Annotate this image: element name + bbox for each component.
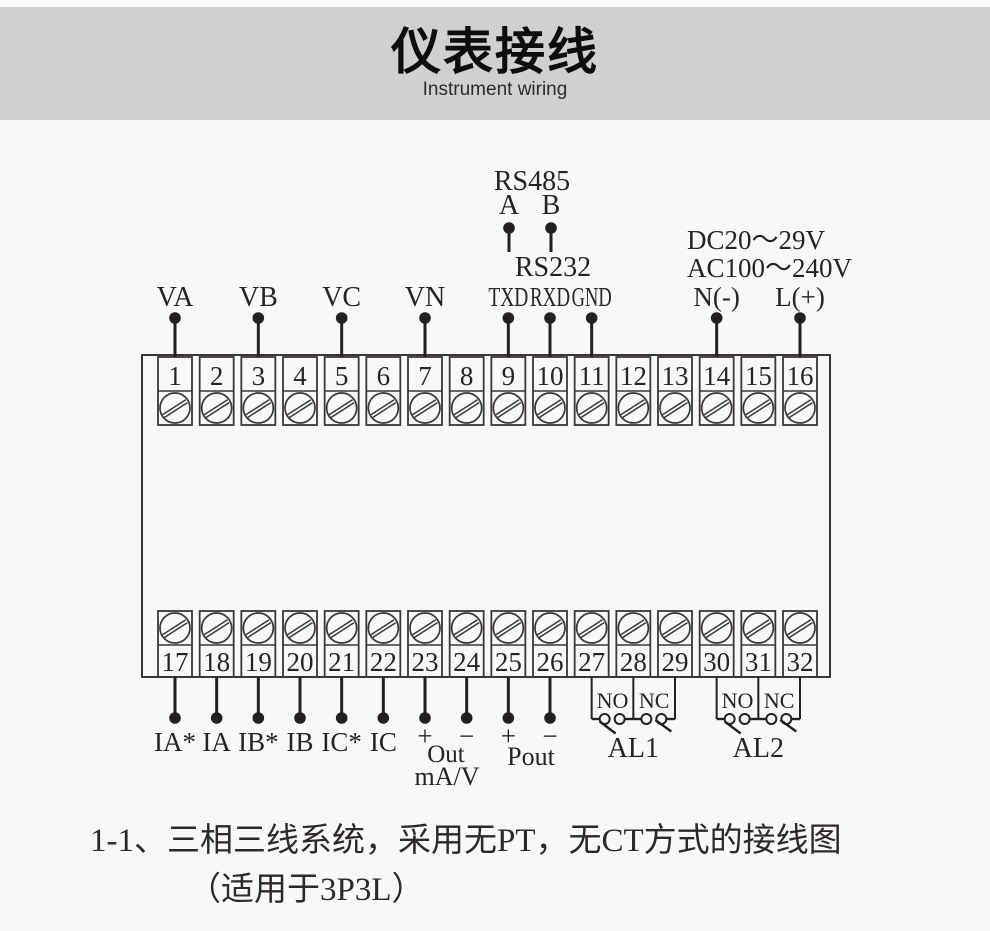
top-wiring-vc: VC xyxy=(322,282,361,357)
screw-icon xyxy=(743,393,773,423)
caption: 1-1、三相三线系统，采用无PT，无CT方式的接线图 （适用于3P3L） xyxy=(90,820,842,912)
terminal-cell-bottom: 22 xyxy=(366,611,400,677)
terminal-function-label: RXD xyxy=(530,282,570,312)
bottom-wiring-20: IB xyxy=(287,677,314,757)
connection-dot xyxy=(169,712,181,724)
terminal-number: 22 xyxy=(370,647,397,677)
terminal-cell-top: 13 xyxy=(658,357,692,425)
screw-icon xyxy=(368,393,398,423)
terminal-function-label: TXD xyxy=(488,282,528,312)
terminal-number: 32 xyxy=(787,647,814,677)
rs485-pin-b-label: B xyxy=(542,190,561,221)
relay-contact-label: NC xyxy=(639,688,670,713)
terminal-cell-top: 8 xyxy=(450,357,484,425)
ac-range-label: AC100～240V xyxy=(687,253,853,283)
relay-contact-label: NO xyxy=(722,688,754,713)
terminal-function-label: N(-) xyxy=(693,282,739,312)
terminal-cell-top: 3 xyxy=(241,357,275,425)
connection-dot xyxy=(711,312,723,324)
terminal-number: 19 xyxy=(245,647,272,677)
screw-icon xyxy=(535,393,565,423)
terminal-number: 14 xyxy=(703,361,731,391)
terminal-number: 28 xyxy=(620,647,647,677)
terminal-function-label: IC* xyxy=(321,727,362,757)
screw-icon xyxy=(577,613,607,643)
terminal-cell-top: 1 xyxy=(158,357,192,425)
connection-dot xyxy=(419,312,431,324)
relay-name-label: AL1 xyxy=(608,733,659,764)
terminal-number: 10 xyxy=(537,361,564,391)
screw-icon xyxy=(660,393,690,423)
terminal-cell-bottom: 31 xyxy=(741,611,775,677)
screw-icon xyxy=(702,613,732,643)
connection-dot xyxy=(211,712,223,724)
top-wiring-vn: VN xyxy=(405,282,445,357)
screw-icon xyxy=(785,393,815,423)
terminal-cell-top: 9 xyxy=(491,357,525,425)
terminal-cell-bottom: 20 xyxy=(283,611,317,677)
rs485-b-connection-dot xyxy=(545,222,557,234)
terminal-function-label: L(+) xyxy=(775,282,825,312)
connection-dot xyxy=(169,312,181,324)
terminal-cell-bottom: 18 xyxy=(200,611,234,677)
screw-icon xyxy=(327,393,357,423)
terminal-cell-top: 7 xyxy=(408,357,442,425)
terminal-function-label: GND xyxy=(572,282,612,312)
top-wiring-l: L(+) xyxy=(775,282,825,357)
relay-group-al1: NONCAL1 xyxy=(592,677,675,764)
terminal-cell-top: 12 xyxy=(616,357,650,425)
caption-line-1: 1-1、三相三线系统，采用无PT，无CT方式的接线图 xyxy=(90,820,842,863)
bottom-wiring-22: IC xyxy=(370,677,397,757)
terminal-number: 5 xyxy=(335,361,349,391)
terminal-function-label: − xyxy=(542,721,557,751)
terminal-cell-bottom: 24 xyxy=(450,611,484,677)
terminal-cell-bottom: 23 xyxy=(408,611,442,677)
screw-icon xyxy=(660,613,690,643)
screw-icon xyxy=(285,393,315,423)
bottom-wiring-25: + xyxy=(501,677,516,751)
terminal-cell-top: 15 xyxy=(741,357,775,425)
terminal-cell-bottom: 26 xyxy=(533,611,567,677)
bottom-wiring-17: IA* xyxy=(154,677,196,757)
bottom-wiring-21: IC* xyxy=(321,677,362,757)
screw-icon xyxy=(743,613,773,643)
screw-icon xyxy=(785,613,815,643)
bottom-wiring-18: IA xyxy=(202,677,231,757)
screw-icon xyxy=(160,393,190,423)
terminal-function-label: − xyxy=(459,721,474,751)
screw-icon xyxy=(493,613,523,643)
relay-contact-terminal xyxy=(766,714,776,724)
terminal-number: 30 xyxy=(703,647,730,677)
top-wiring-n: N(-) xyxy=(693,282,739,357)
top-wiring-va: VA xyxy=(157,282,195,357)
connection-dot xyxy=(544,312,556,324)
bottom-wiring-26: − xyxy=(542,677,557,751)
page: 仪表接线 Instrument wiring RS485 A B RS232 D… xyxy=(0,0,990,931)
terminal-function-label: IA xyxy=(202,727,231,757)
terminal-number: 12 xyxy=(620,361,647,391)
dc-range-label: DC20～29V xyxy=(687,225,826,255)
relay-blade-nc xyxy=(655,720,671,732)
terminal-number: 3 xyxy=(252,361,266,391)
bottom-wiring-24: − xyxy=(459,677,474,751)
connection-dot xyxy=(336,312,348,324)
terminal-number: 20 xyxy=(287,647,314,677)
terminal-function-label: VN xyxy=(405,282,445,313)
terminal-cell-bottom: 17 xyxy=(158,611,192,677)
terminal-number: 16 xyxy=(787,361,814,391)
terminal-number: 25 xyxy=(495,647,522,677)
connection-dot xyxy=(586,312,598,324)
terminal-function-label: IB* xyxy=(238,727,279,757)
relay-name-label: AL2 xyxy=(733,733,784,764)
rs485-a-connection-dot xyxy=(503,222,515,234)
bottom-wiring-23: + xyxy=(417,677,432,751)
terminal-function-label: + xyxy=(501,721,516,751)
terminal-number: 15 xyxy=(745,361,772,391)
screw-icon xyxy=(493,393,523,423)
connection-dot xyxy=(336,712,348,724)
rs232-title: RS232 xyxy=(515,252,591,283)
terminal-number: 1 xyxy=(168,361,182,391)
screw-icon xyxy=(410,613,440,643)
terminal-cell-bottom: 28 xyxy=(616,611,650,677)
connection-dot xyxy=(378,712,390,724)
screw-icon xyxy=(618,393,648,423)
terminal-function-label: IC xyxy=(370,727,397,757)
screw-icon xyxy=(285,613,315,643)
terminal-number: 18 xyxy=(203,647,230,677)
terminal-cell-bottom: 30 xyxy=(700,611,734,677)
screw-icon xyxy=(202,613,232,643)
screw-icon xyxy=(160,613,190,643)
screw-icon xyxy=(368,613,398,643)
rs485-pin-a-label: A xyxy=(499,190,520,221)
terminal-cell-bottom: 29 xyxy=(658,611,692,677)
relay-contact-label: NC xyxy=(764,688,795,713)
terminal-function-label: IB xyxy=(287,727,314,757)
terminal-number: 9 xyxy=(502,361,516,391)
screw-icon xyxy=(577,393,607,423)
terminal-function-label: VA xyxy=(157,282,195,313)
bottom-wiring-19: IB* xyxy=(238,677,279,757)
relay-contact-label: NO xyxy=(597,688,629,713)
terminal-cell-bottom: 19 xyxy=(241,611,275,677)
top-wiring-rxd: RXD xyxy=(530,282,570,357)
relay-contact-terminal xyxy=(740,714,750,724)
rs485-block: RS485 A B xyxy=(494,166,570,252)
screw-icon xyxy=(702,393,732,423)
terminal-number: 24 xyxy=(453,647,481,677)
terminal-cell-top: 14 xyxy=(700,357,734,425)
screw-icon xyxy=(410,393,440,423)
terminal-number: 21 xyxy=(328,647,355,677)
terminal-cell-top: 2 xyxy=(200,357,234,425)
caption-line-2: （适用于3P3L） xyxy=(188,869,842,912)
analog-output-unit: mA/V xyxy=(415,762,480,791)
terminal-function-label: + xyxy=(417,721,432,751)
relay-group-al2: NONCAL2 xyxy=(717,677,800,764)
terminal-number: 6 xyxy=(377,361,391,391)
terminal-cell-bottom: 21 xyxy=(325,611,359,677)
terminal-function-label: VC xyxy=(322,282,361,313)
terminal-cell-top: 6 xyxy=(366,357,400,425)
screw-icon xyxy=(535,613,565,643)
screw-icon xyxy=(327,613,357,643)
terminal-cell-bottom: 25 xyxy=(491,611,525,677)
terminal-number: 31 xyxy=(745,647,772,677)
terminal-number: 8 xyxy=(460,361,474,391)
relay-contact-terminal xyxy=(615,714,625,724)
top-wiring-vb: VB xyxy=(239,282,278,357)
connection-dot xyxy=(794,312,806,324)
connection-dot xyxy=(503,312,515,324)
terminal-cell-top: 10 xyxy=(533,357,567,425)
screw-icon xyxy=(243,613,273,643)
terminal-number: 13 xyxy=(662,361,689,391)
terminal-cell-top: 16 xyxy=(783,357,817,425)
terminal-cell-top: 5 xyxy=(325,357,359,425)
screw-icon xyxy=(452,613,482,643)
terminal-number: 11 xyxy=(579,361,605,391)
top-wiring-gnd: GND xyxy=(572,282,612,357)
terminal-function-label: IA* xyxy=(154,727,196,757)
terminal-number: 29 xyxy=(662,647,689,677)
relay-blade-nc xyxy=(780,720,796,732)
terminal-cell-bottom: 32 xyxy=(783,611,817,677)
screw-icon xyxy=(452,393,482,423)
terminal-number: 7 xyxy=(418,361,432,391)
relay-contact-terminal xyxy=(641,714,651,724)
terminal-cell-bottom: 27 xyxy=(575,611,609,677)
connection-dot xyxy=(294,712,306,724)
terminal-cell-top: 4 xyxy=(283,357,317,425)
screw-icon xyxy=(243,393,273,423)
terminal-cell-top: 11 xyxy=(575,357,609,425)
terminal-number: 17 xyxy=(162,647,189,677)
terminal-number: 23 xyxy=(412,647,439,677)
connection-dot xyxy=(253,312,265,324)
screw-icon xyxy=(618,613,648,643)
terminal-number: 26 xyxy=(537,647,564,677)
terminal-number: 4 xyxy=(293,361,307,391)
screw-icon xyxy=(202,393,232,423)
connection-dot xyxy=(253,712,265,724)
terminal-number: 2 xyxy=(210,361,224,391)
terminal-number: 27 xyxy=(578,647,605,677)
terminal-function-label: VB xyxy=(239,282,278,313)
wiring-diagram: RS485 A B RS232 DC20～29V AC100～240V Out … xyxy=(0,0,990,931)
top-wiring-txd: TXD xyxy=(488,282,528,357)
